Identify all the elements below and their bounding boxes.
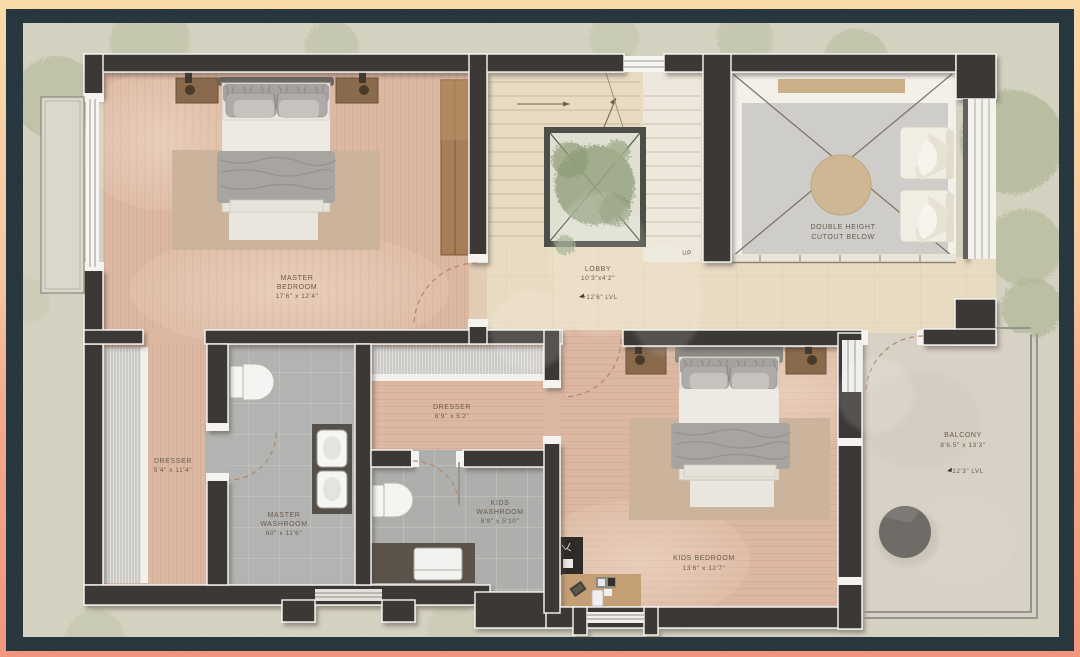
svg-text:5'4" x 11'4": 5'4" x 11'4" (154, 467, 192, 474)
svg-text:13'6" x 12'7": 13'6" x 12'7" (683, 565, 726, 572)
svg-text:KIDS BEDROOM: KIDS BEDROOM (673, 555, 735, 562)
svg-text:+12'6" LVL: +12'6" LVL (582, 294, 618, 301)
svg-text:UP: UP (682, 251, 692, 257)
svg-text:MASTER: MASTER (281, 275, 314, 282)
svg-text:BEDROOM: BEDROOM (277, 284, 317, 291)
svg-text:60" x 11'6": 60" x 11'6" (266, 530, 302, 537)
svg-text:8'9" x 5'2": 8'9" x 5'2" (435, 413, 470, 420)
svg-text:DOUBLE HEIGHT: DOUBLE HEIGHT (811, 224, 876, 231)
svg-text:MASTER: MASTER (268, 512, 301, 519)
svg-text:WASHROOM: WASHROOM (260, 521, 307, 528)
svg-text:LOBBY: LOBBY (585, 266, 611, 273)
svg-text:CUTOUT BELOW: CUTOUT BELOW (811, 234, 874, 241)
svg-text:10'3"x4'2": 10'3"x4'2" (581, 275, 615, 282)
svg-text:17'6" x 12'4": 17'6" x 12'4" (276, 293, 319, 300)
svg-text:BALCONY: BALCONY (944, 432, 982, 439)
svg-text:KIDS: KIDS (491, 500, 510, 507)
svg-text:8'6.5" x 13'3": 8'6.5" x 13'3" (940, 442, 985, 449)
svg-text:+12'3" LVL: +12'3" LVL (948, 468, 984, 475)
svg-text:WASHROOM: WASHROOM (476, 509, 523, 516)
svg-text:8'9" x 5'10": 8'9" x 5'10" (481, 518, 520, 525)
svg-text:DRESSER: DRESSER (433, 404, 471, 411)
svg-text:DRESSER: DRESSER (154, 458, 192, 465)
